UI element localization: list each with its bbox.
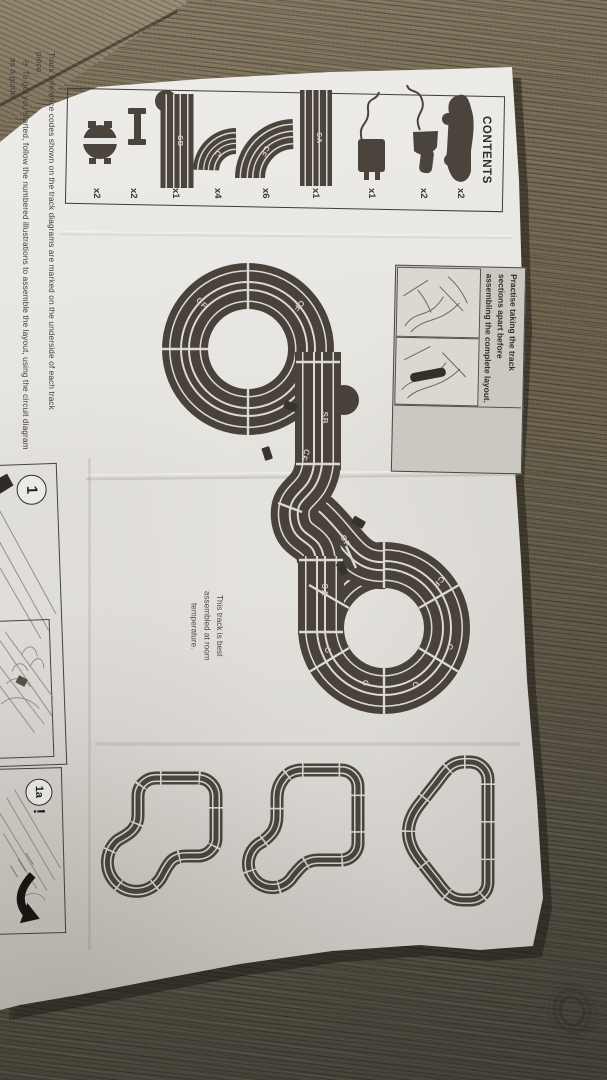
instruction-sheet-content: CONTENTS: [0, 0, 607, 1080]
photo-scene: CONTENTS: [0, 0, 607, 1080]
practise-tip-box: Practise taking the track sections apart…: [391, 265, 526, 475]
practise-caption: Practise taking the track sections apart…: [477, 273, 520, 406]
mini-layout-2: [248, 770, 362, 888]
step-1-closeup-panel: [0, 619, 54, 759]
label-sa: SA: [320, 584, 329, 597]
practise-photo: [393, 405, 521, 473]
alert-exclamation: !: [29, 808, 48, 830]
practise-illustration-1: [396, 267, 481, 339]
mini-layout-3: [409, 762, 493, 900]
step-1a-panel: 1a !: [0, 767, 66, 935]
circuit-diagram: CF CF SB CF CF CF SA C C C C: [0, 0, 607, 1080]
step-1a-number: 1a: [33, 786, 45, 799]
practise-illustration-2: [394, 337, 479, 407]
label-sb: SB: [320, 412, 329, 425]
step-1-number: 1: [23, 485, 40, 494]
track-s-bend: [294, 464, 320, 562]
mini-layout-1: [107, 778, 220, 891]
